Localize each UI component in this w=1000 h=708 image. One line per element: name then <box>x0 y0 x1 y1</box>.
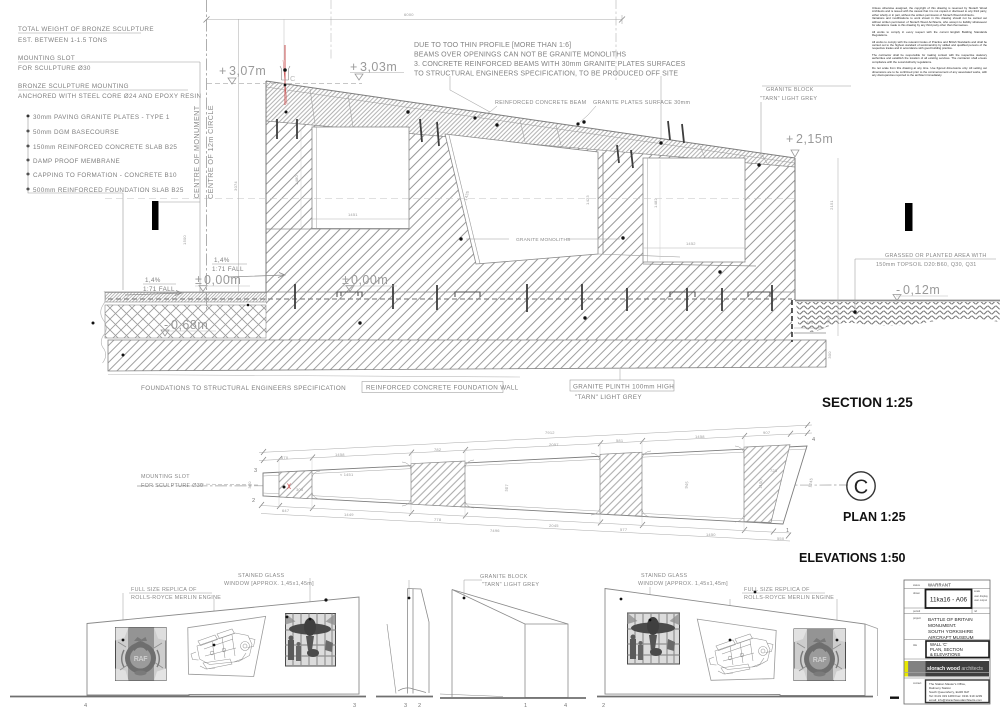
svg-text:RAF: RAF <box>813 657 828 664</box>
svg-text:1: 1 <box>524 703 527 708</box>
svg-text:11ka16 - A06: 11ka16 - A06 <box>930 597 968 604</box>
svg-text:ref: ref <box>974 609 977 613</box>
svg-text:1458: 1458 <box>695 434 705 439</box>
svg-text:drawn: drawn <box>913 591 921 595</box>
svg-text:WINDOW [APPROX. 1,45x1,45m]: WINDOW [APPROX. 1,45x1,45m] <box>638 581 728 587</box>
svg-text:1482: 1482 <box>653 198 658 208</box>
svg-text:670: 670 <box>281 455 289 460</box>
svg-text:778: 778 <box>434 517 442 522</box>
svg-text:status: status <box>913 583 921 587</box>
svg-text:1458: 1458 <box>335 452 345 457</box>
svg-text:GRANITE MONOLITHS: GRANITE MONOLITHS <box>516 237 571 243</box>
svg-text:2: 2 <box>418 703 421 708</box>
svg-text:3: 3 <box>353 703 356 708</box>
svg-text:+: + <box>219 64 227 78</box>
svg-text:1,4%: 1,4% <box>145 277 161 284</box>
svg-text:3. CONCRETE REINFORCED BEAMS W: 3. CONCRETE REINFORCED BEAMS WITH 30mm G… <box>414 61 686 68</box>
svg-text:907: 907 <box>763 430 771 435</box>
svg-text:C: C <box>290 74 296 83</box>
svg-text:FOR SCULPTURE Ø30: FOR SCULPTURE Ø30 <box>18 65 91 72</box>
svg-text:& ELEVATIONS: & ELEVATIONS <box>930 652 961 657</box>
svg-text:507: 507 <box>504 483 510 491</box>
svg-text:2151: 2151 <box>829 200 834 210</box>
svg-text:723: 723 <box>770 468 778 473</box>
svg-text:SECTION 1:25: SECTION 1:25 <box>822 395 913 410</box>
svg-text:1: 1 <box>786 528 789 534</box>
svg-text:PLAN 1:25: PLAN 1:25 <box>843 510 906 524</box>
svg-text:"TARN" LIGHT GREY: "TARN" LIGHT GREY <box>575 394 642 401</box>
svg-text:2,15m: 2,15m <box>796 132 833 146</box>
svg-text:contact: contact <box>913 681 922 685</box>
svg-text:150mm REINFORCED CONCRETE SLAB: 150mm REINFORCED CONCRETE SLAB B25 <box>33 144 177 151</box>
svg-text:email: info@slorachwoodarchite: email: info@slorachwoodarchitects.com <box>929 698 982 702</box>
svg-text:BATTLE OF BRITAIN: BATTLE OF BRITAIN <box>928 617 973 622</box>
svg-text:0,00m: 0,00m <box>204 273 241 287</box>
svg-text:AIRCRAFT MUSEUM: AIRCRAFT MUSEUM <box>928 635 974 640</box>
svg-text:1:71 FALL: 1:71 FALL <box>212 266 244 273</box>
svg-text:1,4%: 1,4% <box>214 257 230 264</box>
svg-text:6000: 6000 <box>404 12 414 17</box>
svg-text:ROLLS-ROYCE MERLIN ENGINE: ROLLS-ROYCE MERLIN ENGINE <box>744 595 834 601</box>
svg-text:7912: 7912 <box>545 430 555 435</box>
svg-text:577: 577 <box>620 527 628 532</box>
svg-text:3,03m: 3,03m <box>360 60 397 74</box>
svg-text:7496: 7496 <box>490 528 500 533</box>
svg-text:4: 4 <box>812 437 815 443</box>
svg-text:3: 3 <box>404 703 407 708</box>
svg-text:3074: 3074 <box>233 181 238 191</box>
svg-text:title: title <box>913 643 918 647</box>
svg-text:305: 305 <box>296 487 304 492</box>
svg-text:WARRANT: WARRANT <box>928 583 951 588</box>
svg-text:CENTRE OF 12m CIRCLE: CENTRE OF 12m CIRCLE <box>206 105 215 199</box>
svg-text:0,00m: 0,00m <box>351 273 388 287</box>
svg-text:1150: 1150 <box>758 478 764 488</box>
svg-text:STAINED GLASS: STAINED GLASS <box>238 573 284 579</box>
svg-text:1480: 1480 <box>294 175 299 185</box>
svg-text:3,07m: 3,07m <box>229 64 266 78</box>
svg-text:1450: 1450 <box>706 532 716 537</box>
svg-text:550: 550 <box>777 536 785 541</box>
svg-text:782: 782 <box>434 447 442 452</box>
svg-text:3: 3 <box>254 468 257 474</box>
svg-text:360: 360 <box>826 316 831 324</box>
svg-text:EST. BETWEEN 1-1.5 TONS: EST. BETWEEN 1-1.5 TONS <box>18 37 107 44</box>
svg-text:GRANITE PLINTH 100mm HIGH: GRANITE PLINTH 100mm HIGH <box>573 384 674 391</box>
svg-text:period: period <box>913 609 921 613</box>
svg-text:300: 300 <box>827 351 832 359</box>
svg-text:REINFORCED CONCRETE BEAM: REINFORCED CONCRETE BEAM <box>495 100 587 106</box>
svg-text:±: ± <box>342 273 349 287</box>
svg-text:TO STRUCTURAL ENGINEERS SPECIF: TO STRUCTURAL ENGINEERS SPECIFICATION, T… <box>414 71 678 78</box>
svg-text:MONUMENT.: MONUMENT. <box>928 623 956 628</box>
svg-text:slorach wood architects: slorach wood architects <box>927 666 983 672</box>
svg-text:1500: 1500 <box>182 235 187 245</box>
svg-text:FOR SCULPTURE Ø30: FOR SCULPTURE Ø30 <box>141 483 203 489</box>
svg-text:GRANITE PLATES SURFACE 30mm: GRANITE PLATES SURFACE 30mm <box>593 100 690 106</box>
svg-text:+: + <box>786 132 794 146</box>
svg-text:FOUNDATIONS TO STRUCTURAL ENGI: FOUNDATIONS TO STRUCTURAL ENGINEERS SPEC… <box>141 385 346 392</box>
svg-text:CAPPING TO FORMATION - CONCRET: CAPPING TO FORMATION - CONCRETE B10 <box>33 172 177 179</box>
svg-text:1449: 1449 <box>344 512 354 517</box>
svg-text:ROLLS-ROYCE MERLIN ENGINE: ROLLS-ROYCE MERLIN ENGINE <box>131 595 221 601</box>
svg-text:MOUNTING SLOT: MOUNTING SLOT <box>141 474 190 480</box>
svg-text:"TARN" LIGHT GREY: "TARN" LIGHT GREY <box>482 582 539 588</box>
svg-text:2: 2 <box>252 498 255 504</box>
svg-text:2: 2 <box>602 703 605 708</box>
svg-text:REINFORCED CONCRETE FOUNDATION: REINFORCED CONCRETE FOUNDATION WALL <box>366 385 519 392</box>
svg-text:30mm PAVING GRANITE PLATES - T: 30mm PAVING GRANITE PLATES - TYPE 1 <box>33 114 170 121</box>
svg-text:1451: 1451 <box>348 212 358 217</box>
svg-text:C: C <box>854 477 868 499</box>
svg-text:4: 4 <box>564 703 567 708</box>
svg-text:"TARN" LIGHT GREY: "TARN" LIGHT GREY <box>760 96 817 102</box>
svg-text:2045: 2045 <box>549 523 559 528</box>
svg-text:project: project <box>913 616 921 620</box>
svg-text:1452: 1452 <box>686 241 696 246</box>
svg-text:BEAMS OVER OPENINGS CAN NOT BE: BEAMS OVER OPENINGS CAN NOT BE GRANITE M… <box>414 52 626 59</box>
svg-text:0,68m: 0,68m <box>171 318 208 332</box>
svg-text:ELEVATIONS 1:50: ELEVATIONS 1:50 <box>799 551 906 565</box>
svg-text:647: 647 <box>282 508 290 513</box>
svg-text:4: 4 <box>84 703 87 708</box>
svg-text:0,12m: 0,12m <box>903 283 940 297</box>
svg-text:RAF: RAF <box>134 656 149 663</box>
svg-text:GRASSED OR PLANTED AREA WITH: GRASSED OR PLANTED AREA WITH <box>885 253 987 259</box>
svg-text:429: 429 <box>806 320 814 325</box>
svg-text:user output: user output <box>974 598 987 602</box>
svg-text:1:71 FALL: 1:71 FALL <box>143 286 175 293</box>
svg-text:STAINED GLASS: STAINED GLASS <box>641 573 687 579</box>
svg-text:≈ 1451: ≈ 1451 <box>340 472 354 477</box>
svg-text:DAMP PROOF MEMBRANE: DAMP PROOF MEMBRANE <box>33 158 120 165</box>
svg-text:50mm DGM BASECOURSE: 50mm DGM BASECOURSE <box>33 129 119 136</box>
svg-text:2057: 2057 <box>549 442 559 447</box>
svg-text:MOUNTING SLOT: MOUNTING SLOT <box>18 55 75 62</box>
svg-text:CENTRE OF MONUMENT: CENTRE OF MONUMENT <box>192 105 201 198</box>
svg-text:SOUTH YORKSHIRE: SOUTH YORKSHIRE <box>928 629 973 634</box>
svg-text:+: + <box>350 60 358 74</box>
svg-text:581: 581 <box>616 438 624 443</box>
svg-text:WINDOW [APPROX. 1,45x1,45m]: WINDOW [APPROX. 1,45x1,45m] <box>224 581 314 587</box>
svg-text:1423: 1423 <box>585 195 590 205</box>
svg-text:GRANITE BLOCK: GRANITE BLOCK <box>480 574 528 580</box>
svg-text:user display: user display <box>974 594 989 598</box>
svg-text:945: 945 <box>684 480 690 488</box>
svg-text:scale: scale <box>974 589 981 593</box>
svg-text:±: ± <box>195 273 202 287</box>
svg-text:BRONZE SCULPTURE MOUNTING: BRONZE SCULPTURE MOUNTING <box>18 83 129 90</box>
svg-text:150mm TOPSOIL D20:B60, Q30, Q3: 150mm TOPSOIL D20:B60, Q30, Q31 <box>876 262 977 268</box>
svg-text:DUE TO TOO THIN PROFILE [MORE: DUE TO TOO THIN PROFILE [MORE THAN 1:6] <box>414 42 571 49</box>
svg-text:GRANITE BLOCK: GRANITE BLOCK <box>766 87 814 93</box>
svg-text:TOTAL WEIGHT OF BRONZE SCULPTU: TOTAL WEIGHT OF BRONZE SCULPTURE <box>18 26 154 33</box>
svg-text:FULL SIZE REPLICA OF: FULL SIZE REPLICA OF <box>131 587 197 593</box>
svg-text:ANCHORED WITH STEEL CORE Ø24 A: ANCHORED WITH STEEL CORE Ø24 AND EPOXY R… <box>18 93 201 100</box>
